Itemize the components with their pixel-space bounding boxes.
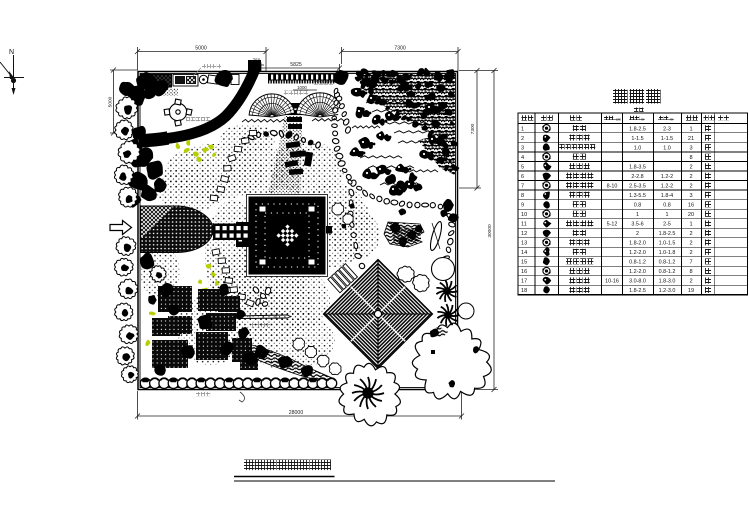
svg-text:19: 19 — [688, 288, 694, 294]
svg-text:5-12: 5-12 — [607, 222, 618, 228]
svg-text:5: 5 — [521, 164, 524, 170]
svg-text:8: 8 — [689, 155, 692, 161]
svg-text:3: 3 — [689, 145, 692, 151]
svg-text:1.0-1.8: 1.0-1.8 — [659, 250, 676, 256]
svg-text:15: 15 — [521, 260, 527, 266]
svg-text:1.8-4: 1.8-4 — [661, 193, 673, 199]
svg-text:30000: 30000 — [487, 224, 493, 238]
svg-text:7: 7 — [689, 260, 692, 266]
svg-text:3: 3 — [689, 193, 692, 199]
svg-text:18: 18 — [521, 288, 527, 294]
svg-text:7300: 7300 — [394, 46, 406, 52]
svg-text:16: 16 — [521, 269, 527, 275]
svg-text:2: 2 — [689, 164, 692, 170]
svg-text:1.0: 1.0 — [634, 145, 642, 151]
svg-text:1.2-2.0: 1.2-2.0 — [629, 269, 646, 275]
svg-text:7300: 7300 — [470, 123, 476, 134]
svg-text:8: 8 — [689, 269, 692, 275]
svg-text:6: 6 — [521, 174, 524, 180]
svg-text:1.2-3.0: 1.2-3.0 — [659, 288, 676, 294]
svg-text:3.5-6: 3.5-6 — [631, 222, 643, 228]
svg-text:2-2.8: 2-2.8 — [631, 174, 643, 180]
svg-text:2: 2 — [689, 174, 692, 180]
svg-text:2.5-3.5: 2.5-3.5 — [629, 184, 646, 190]
svg-text:9: 9 — [521, 203, 524, 209]
svg-text:21: 21 — [688, 136, 694, 142]
svg-text:1.8-2.5: 1.8-2.5 — [629, 126, 646, 132]
svg-text:0.8: 0.8 — [634, 203, 642, 209]
svg-text:1.2-2: 1.2-2 — [661, 174, 673, 180]
svg-text:1.2-2: 1.2-2 — [661, 184, 673, 190]
svg-text:4: 4 — [521, 155, 524, 161]
svg-text:1000: 1000 — [297, 85, 307, 90]
svg-text:1.2-2.0: 1.2-2.0 — [629, 250, 646, 256]
svg-text:3: 3 — [521, 145, 524, 151]
svg-text:0.8-1.2: 0.8-1.2 — [629, 260, 646, 266]
svg-text:7: 7 — [521, 184, 524, 190]
svg-text:8-10: 8-10 — [607, 184, 618, 190]
svg-text:10-16: 10-16 — [605, 279, 619, 285]
svg-text:1.8-3.5: 1.8-3.5 — [629, 164, 646, 170]
svg-text:8: 8 — [521, 193, 524, 199]
svg-text:1-1.5: 1-1.5 — [661, 136, 673, 142]
svg-text:12: 12 — [521, 231, 527, 237]
svg-text:1: 1 — [689, 126, 692, 132]
svg-text:2: 2 — [636, 231, 639, 237]
svg-text:2: 2 — [521, 136, 524, 142]
svg-text:2-5: 2-5 — [663, 222, 671, 228]
svg-text:1.8-2.5: 1.8-2.5 — [629, 288, 646, 294]
svg-text:1: 1 — [689, 222, 692, 228]
svg-text:14: 14 — [521, 250, 527, 256]
svg-text:1: 1 — [666, 212, 669, 218]
svg-text:11: 11 — [521, 222, 527, 228]
svg-text:1: 1 — [636, 212, 639, 218]
svg-text:2: 2 — [689, 250, 692, 256]
svg-text:5000: 5000 — [195, 46, 207, 52]
svg-text:2: 2 — [689, 231, 692, 237]
svg-text:1.8-2.0: 1.8-2.0 — [629, 241, 646, 247]
svg-text:1: 1 — [521, 126, 524, 132]
svg-text:0.8: 0.8 — [663, 203, 671, 209]
svg-text:5000: 5000 — [108, 96, 114, 107]
svg-text:2: 2 — [689, 241, 692, 247]
svg-text:1.8-3.0: 1.8-3.0 — [659, 279, 676, 285]
svg-text:3.0-8.0: 3.0-8.0 — [629, 279, 646, 285]
svg-text:0.8-1.2: 0.8-1.2 — [659, 269, 676, 275]
svg-text:1.0-1.5: 1.0-1.5 — [659, 241, 676, 247]
svg-text:0.8-1.2: 0.8-1.2 — [659, 260, 676, 266]
svg-text:1-1.5: 1-1.5 — [631, 136, 643, 142]
svg-text:2: 2 — [689, 184, 692, 190]
svg-text:1.8-2.5: 1.8-2.5 — [659, 231, 676, 237]
svg-text:1.3-5.5: 1.3-5.5 — [629, 193, 646, 199]
svg-text:10: 10 — [521, 212, 527, 218]
svg-text:17: 17 — [521, 279, 527, 285]
svg-text:2: 2 — [689, 279, 692, 285]
svg-text:16: 16 — [688, 203, 694, 209]
svg-text:20: 20 — [688, 212, 694, 218]
svg-text:13: 13 — [521, 241, 527, 247]
svg-text:1.0: 1.0 — [663, 145, 671, 151]
svg-text:28000: 28000 — [289, 410, 304, 416]
svg-text:N: N — [9, 49, 14, 56]
svg-text:5825: 5825 — [290, 62, 302, 68]
svg-text:2-3: 2-3 — [663, 126, 671, 132]
